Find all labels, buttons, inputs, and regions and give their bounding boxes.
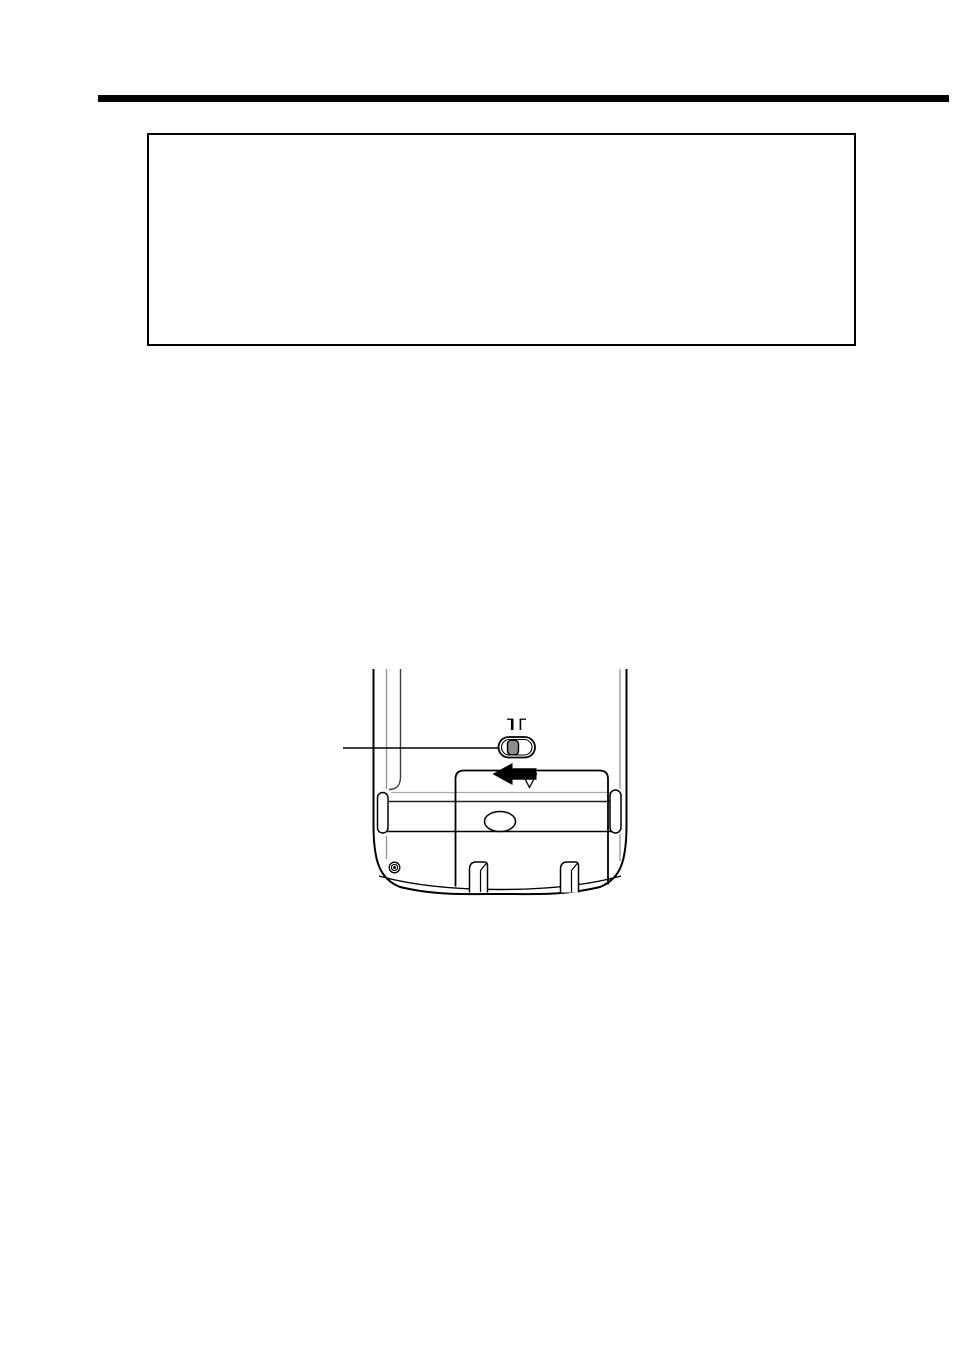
thumb-oval xyxy=(485,812,516,832)
cover-tab-left xyxy=(470,862,488,893)
callout-box xyxy=(147,133,856,346)
switch-position-marks xyxy=(507,719,526,730)
inner-panel-line xyxy=(389,669,401,790)
device-back-outline xyxy=(374,669,627,894)
bottom-inner-edge xyxy=(379,876,621,890)
left-side-notch xyxy=(378,793,389,834)
top-rule xyxy=(98,95,949,102)
screw-icon xyxy=(389,862,400,873)
cover-tab-right xyxy=(561,862,579,893)
slider-switch xyxy=(499,737,536,758)
right-side-notch xyxy=(610,790,621,833)
document-page xyxy=(0,0,954,1351)
slider-switch-knob xyxy=(508,740,519,755)
device-back-figure xyxy=(335,658,645,910)
device-back-illustration xyxy=(335,658,645,910)
